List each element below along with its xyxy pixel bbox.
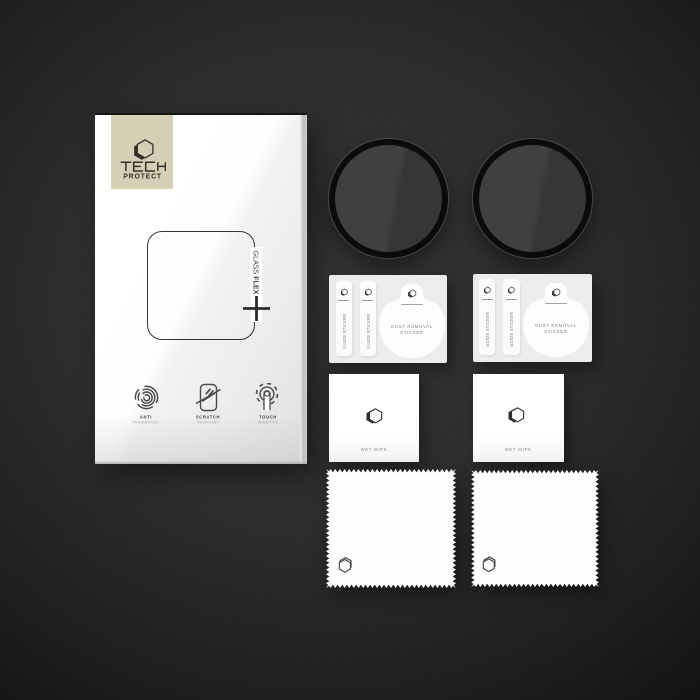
svg-text:GLASS FLEX: GLASS FLEX bbox=[251, 250, 259, 294]
svg-text:WET WIPE: WET WIPE bbox=[360, 447, 387, 452]
svg-text:GUIDE STICKER: GUIDE STICKER bbox=[366, 313, 371, 348]
svg-text:SENSITIVE: SENSITIVE bbox=[258, 420, 279, 424]
svg-text:STICKER: STICKER bbox=[400, 330, 423, 335]
svg-text:GUIDE STICKER: GUIDE STICKER bbox=[341, 313, 346, 348]
svg-text:GUIDE STICKER: GUIDE STICKER bbox=[485, 312, 490, 347]
svg-text:STICKER: STICKER bbox=[544, 329, 567, 334]
svg-text:SCRATCH: SCRATCH bbox=[196, 414, 220, 419]
svg-text:WET WIPE: WET WIPE bbox=[505, 447, 532, 452]
svg-text:GUIDE STICKER: GUIDE STICKER bbox=[509, 312, 514, 347]
svg-text:DUST REMOVAL: DUST REMOVAL bbox=[391, 324, 433, 329]
svg-text:DUST REMOVAL: DUST REMOVAL bbox=[535, 323, 577, 328]
svg-text:ANTI: ANTI bbox=[140, 414, 152, 419]
svg-text:FINGERPRINT: FINGERPRINT bbox=[133, 420, 160, 424]
svg-text:TOUCH: TOUCH bbox=[259, 414, 277, 419]
svg-text:RESISTANT: RESISTANT bbox=[197, 420, 219, 424]
svg-text:PROTECT: PROTECT bbox=[123, 173, 162, 180]
